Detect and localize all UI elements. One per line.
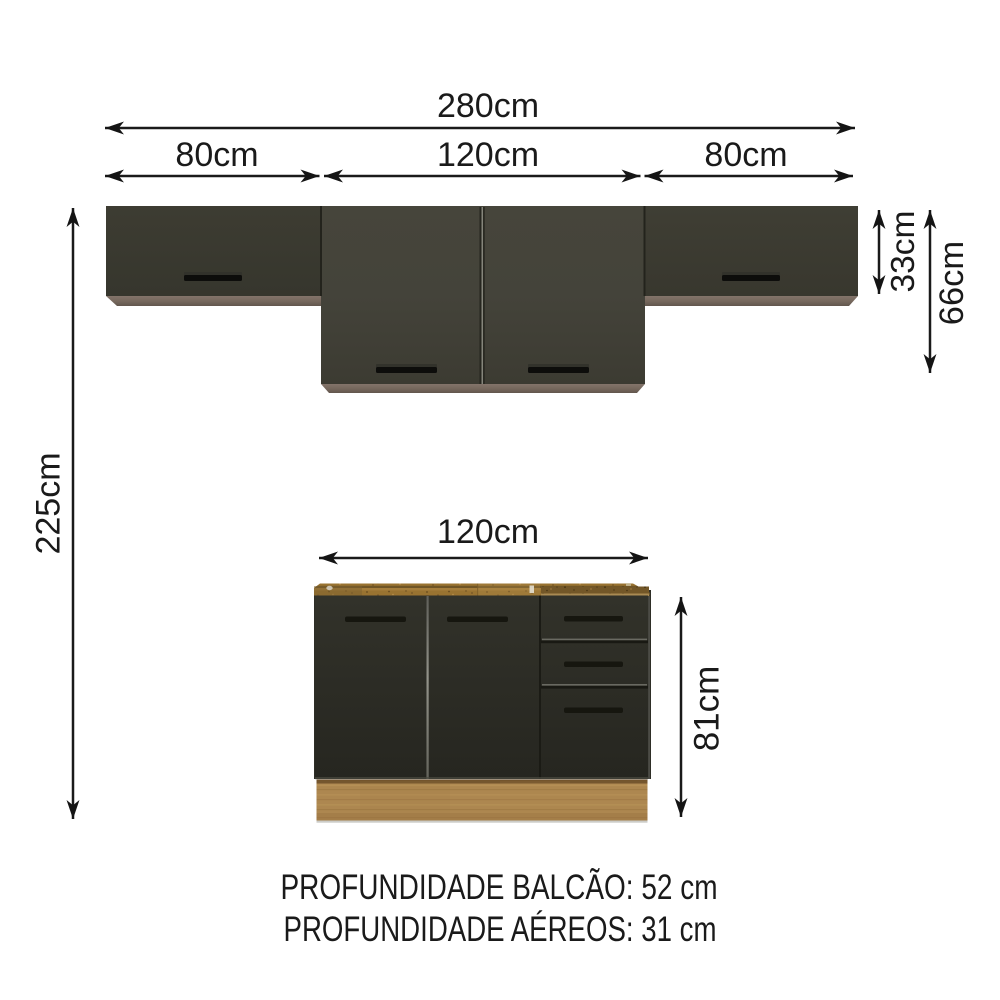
svg-text:80cm: 80cm	[175, 136, 258, 174]
svg-text:80cm: 80cm	[704, 136, 787, 174]
svg-text:120cm: 120cm	[437, 513, 539, 551]
svg-text:280cm: 280cm	[437, 87, 539, 125]
svg-text:120cm: 120cm	[437, 136, 539, 174]
svg-text:PROFUNDIDADE BALCÃO: 52 cm: PROFUNDIDADE BALCÃO: 52 cm	[280, 867, 717, 907]
svg-text:81cm: 81cm	[688, 666, 727, 752]
svg-text:33cm: 33cm	[885, 211, 922, 293]
svg-text:66cm: 66cm	[933, 241, 971, 325]
svg-text:225cm: 225cm	[30, 452, 68, 554]
svg-text:PROFUNDIDADE AÉREOS: 31 cm: PROFUNDIDADE AÉREOS: 31 cm	[284, 909, 717, 949]
